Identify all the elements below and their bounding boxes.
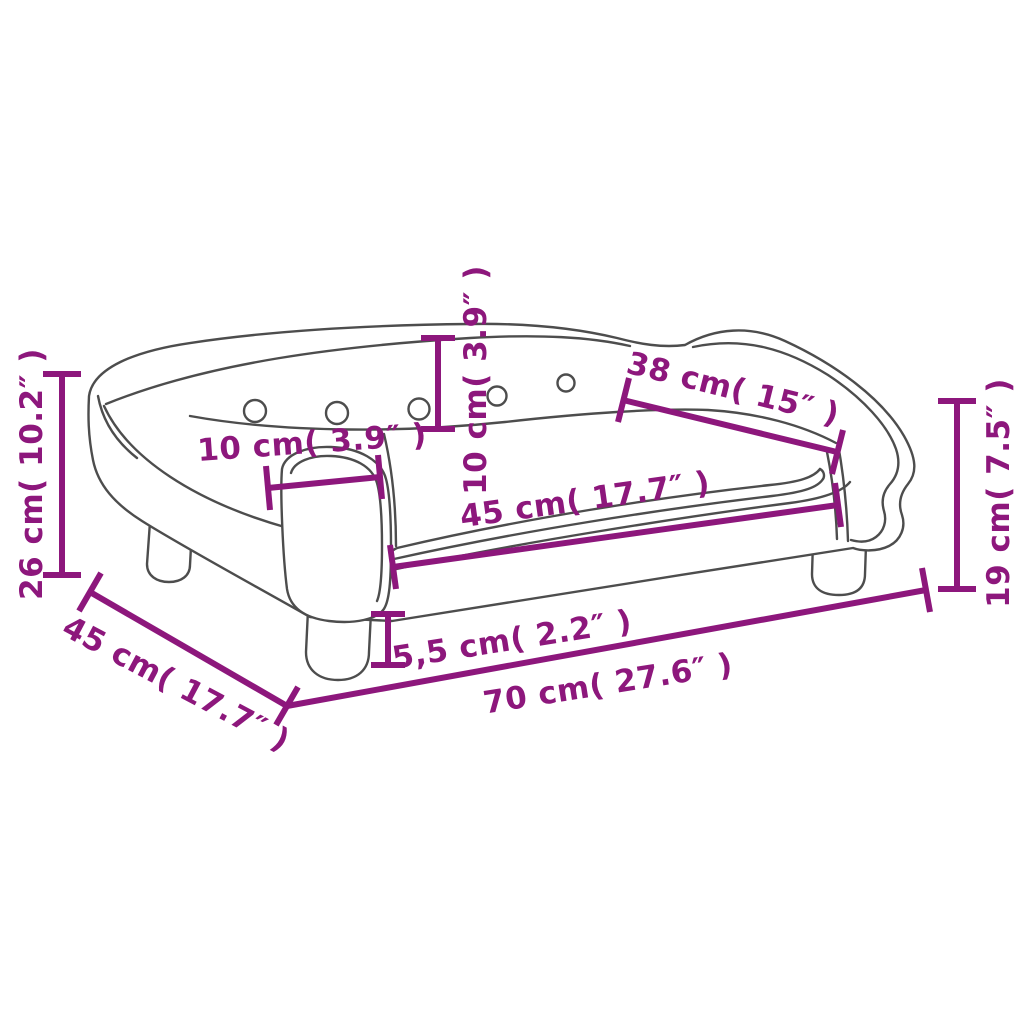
dim-overall-width-label: 70 cm( 27.6″ ) — [481, 647, 735, 722]
sofa-body-outline — [88, 324, 914, 621]
dim-overall-height-label: 26 cm( 10.2″ ) — [14, 348, 50, 600]
sofa-button-2 — [326, 402, 348, 424]
dim-arm-height-label: 19 cm( 7.5″ ) — [981, 378, 1017, 608]
sofa-dimension-drawing: 26 cm( 10.2″ ) 45 cm( 17.7″ ) 70 cm( 27.… — [0, 0, 1024, 1024]
dim-armrest-width-tick-left — [266, 466, 270, 510]
dim-overall-depth: 45 cm( 17.7″ ) — [56, 573, 298, 759]
sofa-button-5 — [558, 375, 575, 392]
dim-overall-height: 26 cm( 10.2″ ) — [14, 348, 81, 600]
dim-overall-depth-label: 45 cm( 17.7″ ) — [56, 609, 295, 759]
sofa-button-3 — [409, 399, 430, 420]
dim-arm-height: 19 cm( 7.5″ ) — [938, 378, 1017, 608]
dimension-diagram: 26 cm( 10.2″ ) 45 cm( 17.7″ ) 70 cm( 27.… — [0, 0, 1024, 1024]
dim-overall-width-tick-right — [922, 568, 930, 612]
dim-backrest-height-label: 10 cm( 3.9″ ) — [458, 265, 494, 495]
dim-overall-depth-tick-top — [79, 573, 101, 611]
dim-armrest-width-tick-right — [378, 455, 382, 499]
sofa-button-1 — [244, 400, 266, 422]
sofa-front-left-arm — [281, 447, 391, 622]
